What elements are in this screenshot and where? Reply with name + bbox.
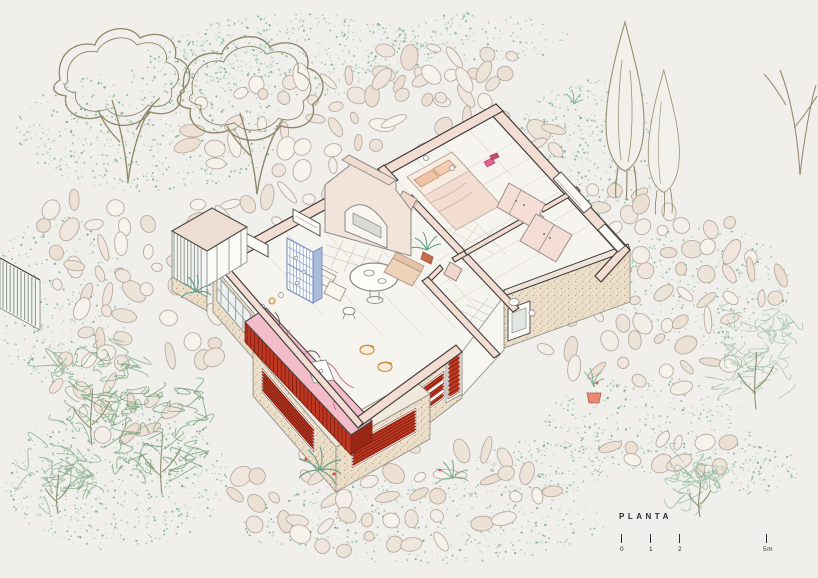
stipple-dot bbox=[401, 562, 402, 563]
stipple-dot bbox=[757, 291, 759, 293]
stipple-dot bbox=[442, 559, 444, 561]
stipple-dot bbox=[188, 91, 189, 92]
stipple-dot bbox=[224, 474, 226, 476]
stipple-dot bbox=[120, 112, 122, 114]
stipple-dot bbox=[211, 119, 213, 121]
stipple-dot bbox=[103, 155, 105, 157]
stipple-dot bbox=[692, 275, 694, 277]
stipple-dot bbox=[70, 505, 71, 506]
stipple-dot bbox=[781, 465, 783, 467]
stipple-dot bbox=[272, 115, 273, 116]
stipple-dot bbox=[341, 36, 342, 37]
stipple-dot bbox=[140, 115, 142, 117]
stipple-dot bbox=[54, 307, 56, 309]
stipple-dot bbox=[78, 118, 80, 120]
stipple-dot bbox=[163, 533, 165, 535]
stipple-dot bbox=[450, 544, 452, 546]
stipple-dot bbox=[205, 89, 207, 91]
stipple-dot bbox=[204, 50, 206, 52]
stipple-dot bbox=[70, 329, 72, 331]
stipple-dot bbox=[586, 186, 587, 187]
stipple-dot bbox=[301, 37, 303, 39]
stipple-dot bbox=[487, 43, 489, 45]
stipple-dot bbox=[135, 186, 137, 188]
stipple-dot bbox=[448, 487, 450, 489]
stipple-dot bbox=[82, 427, 83, 428]
stipple-dot bbox=[619, 430, 620, 431]
stipple-dot bbox=[122, 104, 124, 106]
stipple-dot bbox=[733, 288, 734, 289]
stipple-dot bbox=[439, 60, 440, 61]
stipple-dot bbox=[67, 299, 69, 301]
stipple-dot bbox=[92, 282, 93, 283]
stipple-dot bbox=[78, 238, 79, 239]
stipple-dot bbox=[7, 258, 8, 259]
stipple-dot bbox=[397, 41, 398, 42]
stipple-dot bbox=[567, 138, 569, 140]
stipple-dot bbox=[325, 21, 327, 23]
stipple-dot bbox=[536, 53, 538, 55]
stipple-dot bbox=[301, 13, 302, 14]
stipple-dot bbox=[146, 523, 148, 525]
stipple-dot bbox=[186, 42, 187, 43]
stipple-dot bbox=[544, 455, 545, 456]
stipple-dot bbox=[417, 35, 419, 37]
stipple-dot bbox=[549, 155, 551, 157]
stipple-dot bbox=[213, 77, 215, 79]
stipple-dot bbox=[738, 230, 740, 232]
stipple-dot bbox=[44, 298, 46, 300]
stipple-dot bbox=[597, 134, 598, 135]
stipple-dot bbox=[84, 456, 85, 457]
stipple-dot bbox=[186, 53, 188, 55]
stipple-dot bbox=[110, 270, 112, 272]
stipple-dot bbox=[33, 346, 35, 348]
stipple-dot bbox=[659, 330, 660, 331]
stipple-dot bbox=[542, 476, 544, 478]
stipple-dot bbox=[578, 172, 580, 174]
stipple-dot bbox=[689, 275, 690, 276]
stipple-dot bbox=[105, 507, 107, 509]
stipple-dot bbox=[589, 160, 590, 161]
stipple-dot bbox=[589, 118, 591, 120]
stipple-dot bbox=[355, 532, 357, 534]
stipple-dot bbox=[475, 492, 476, 493]
stipple-dot bbox=[93, 244, 95, 246]
stipple-dot bbox=[114, 482, 115, 483]
stipple-dot bbox=[221, 456, 222, 457]
stipple-dot bbox=[316, 87, 318, 89]
stipple-dot bbox=[86, 543, 88, 545]
stipple-dot bbox=[106, 182, 108, 184]
stipple-dot bbox=[174, 116, 175, 117]
stipple-dot bbox=[645, 122, 647, 124]
stipple-dot bbox=[37, 231, 38, 232]
stipple-dot bbox=[229, 175, 231, 177]
stipple-dot bbox=[667, 339, 669, 341]
stipple-dot bbox=[104, 144, 106, 146]
stipple-dot bbox=[219, 97, 221, 99]
stipple-dot bbox=[400, 35, 401, 36]
stipple-dot bbox=[531, 42, 533, 44]
stipple-dot bbox=[59, 308, 61, 310]
stipple-dot bbox=[609, 382, 611, 384]
stipple-dot bbox=[593, 95, 595, 97]
stipple-dot bbox=[235, 169, 236, 170]
stipple-dot bbox=[655, 276, 657, 278]
stipple-dot bbox=[464, 54, 466, 56]
stipple-dot bbox=[377, 526, 379, 528]
stipple-dot bbox=[549, 465, 551, 467]
stipple-dot bbox=[370, 65, 372, 67]
stipple-dot bbox=[465, 14, 466, 15]
stipple-dot bbox=[766, 444, 768, 446]
stipple-dot bbox=[596, 511, 598, 513]
stipple-dot bbox=[162, 86, 164, 88]
stipple-dot bbox=[270, 64, 272, 66]
stipple-dot bbox=[515, 446, 516, 447]
stipple-dot bbox=[564, 94, 566, 96]
stipple-dot bbox=[21, 487, 22, 488]
stipple-dot bbox=[235, 46, 237, 48]
stipple-dot bbox=[582, 519, 583, 520]
stipple-dot bbox=[615, 170, 617, 172]
stipple-dot bbox=[147, 67, 149, 69]
stipple-dot bbox=[598, 428, 599, 429]
stipple-dot bbox=[137, 494, 139, 496]
stipple-dot bbox=[613, 455, 614, 456]
stipple-dot bbox=[52, 452, 54, 454]
stipple-dot bbox=[153, 66, 155, 68]
stipple-dot bbox=[586, 448, 587, 449]
stipple-dot bbox=[640, 160, 642, 162]
stipple-dot bbox=[218, 36, 220, 38]
stipple-dot bbox=[237, 86, 239, 88]
stipple-dot bbox=[142, 418, 143, 419]
stipple-dot bbox=[525, 20, 527, 22]
stipple-dot bbox=[265, 38, 267, 40]
stipple-dot bbox=[692, 236, 693, 237]
stipple-dot bbox=[99, 82, 101, 84]
stipple-dot bbox=[182, 35, 183, 36]
stipple-dot bbox=[756, 243, 758, 245]
stipple-dot bbox=[759, 446, 761, 448]
stipple-dot bbox=[165, 42, 166, 43]
stipple-dot bbox=[662, 276, 663, 277]
stipple-dot bbox=[376, 534, 378, 536]
stipple-dot bbox=[177, 160, 178, 161]
stipple-dot bbox=[96, 284, 98, 286]
stipple-dot bbox=[35, 429, 37, 431]
stipple-dot bbox=[487, 545, 489, 547]
stipple-dot bbox=[90, 80, 92, 82]
stipple-dot bbox=[520, 488, 521, 489]
stipple-dot bbox=[424, 53, 425, 54]
stipple-dot bbox=[225, 485, 227, 487]
stipple-dot bbox=[563, 442, 565, 444]
stipple-dot bbox=[706, 416, 708, 418]
stipple-dot bbox=[154, 501, 155, 502]
stipple-dot bbox=[586, 195, 588, 197]
stipple-dot bbox=[578, 85, 580, 87]
stipple-dot bbox=[101, 503, 103, 505]
stipple-dot bbox=[471, 15, 473, 17]
stipple-dot bbox=[236, 112, 237, 113]
stipple-dot bbox=[246, 145, 248, 147]
stipple-dot bbox=[276, 63, 277, 64]
stipple-dot bbox=[198, 432, 200, 434]
stipple-dot bbox=[78, 338, 79, 339]
stipple-dot bbox=[632, 262, 634, 264]
stipple-dot bbox=[259, 103, 260, 104]
stipple-dot bbox=[201, 44, 203, 46]
stipple-dot bbox=[164, 511, 166, 513]
stipple-dot bbox=[11, 485, 12, 486]
stipple-dot bbox=[313, 503, 314, 504]
stipple-dot bbox=[617, 427, 619, 429]
stipple-dot bbox=[255, 58, 257, 60]
stipple-dot bbox=[385, 28, 386, 29]
stipple-dot bbox=[216, 58, 217, 59]
stipple-dot bbox=[314, 92, 316, 94]
stipple-dot bbox=[348, 29, 350, 31]
stipple-dot bbox=[424, 33, 425, 34]
stipple-dot bbox=[302, 25, 304, 27]
stipple-dot bbox=[76, 121, 78, 123]
stipple-dot bbox=[678, 281, 679, 282]
stipple-dot bbox=[96, 299, 97, 300]
stipple-dot bbox=[635, 312, 636, 313]
stipple-dot bbox=[80, 108, 82, 110]
stipple-dot bbox=[139, 463, 141, 465]
stipple-dot bbox=[176, 533, 178, 535]
stipple-dot bbox=[318, 53, 320, 55]
stipple-dot bbox=[752, 306, 753, 307]
stipple-dot bbox=[587, 82, 588, 83]
stipple-dot bbox=[206, 65, 208, 67]
stipple-dot bbox=[23, 231, 24, 232]
stipple-dot bbox=[395, 560, 397, 562]
stipple-dot bbox=[77, 379, 79, 381]
stipple-dot bbox=[437, 526, 439, 528]
stipple-dot bbox=[445, 513, 447, 515]
stipple-dot bbox=[170, 80, 172, 82]
stipple-dot bbox=[201, 167, 203, 169]
stipple-dot bbox=[12, 482, 14, 484]
stipple-dot bbox=[701, 345, 703, 347]
stipple-dot bbox=[555, 99, 556, 100]
stipple-dot bbox=[449, 496, 451, 498]
stipple-dot bbox=[150, 511, 151, 512]
stipple-dot bbox=[123, 327, 125, 329]
stipple-dot bbox=[246, 39, 247, 40]
stipple-dot bbox=[214, 37, 215, 38]
stipple-dot bbox=[209, 515, 211, 517]
stipple-dot bbox=[106, 103, 108, 105]
stipple-dot bbox=[182, 431, 184, 433]
stipple-dot bbox=[675, 239, 676, 240]
stipple-dot bbox=[175, 112, 177, 114]
stipple-dot bbox=[147, 459, 148, 460]
stipple-dot bbox=[290, 48, 291, 49]
stipple-dot bbox=[114, 489, 116, 491]
stipple-dot bbox=[391, 63, 392, 64]
stipple-dot bbox=[187, 57, 188, 58]
stipple-dot bbox=[284, 54, 286, 56]
stipple-dot bbox=[48, 370, 49, 371]
stipple-dot bbox=[236, 82, 237, 83]
stipple-dot bbox=[552, 41, 554, 43]
stipple-dot bbox=[562, 86, 563, 87]
stipple-dot bbox=[549, 529, 550, 530]
stipple-dot bbox=[718, 312, 720, 314]
stipple-dot bbox=[91, 453, 93, 455]
stipple-dot bbox=[216, 479, 218, 481]
stipple-dot bbox=[47, 531, 49, 533]
stipple-dot bbox=[543, 445, 545, 447]
stipple-dot bbox=[164, 519, 166, 521]
stipple-dot bbox=[660, 390, 662, 392]
stipple-dot bbox=[8, 251, 9, 252]
stipple-dot bbox=[542, 523, 543, 524]
stipple-dot bbox=[397, 531, 399, 533]
stipple-dot bbox=[62, 439, 64, 441]
stipple-dot bbox=[604, 145, 606, 147]
stipple-dot bbox=[572, 532, 574, 534]
stipple-dot bbox=[557, 443, 559, 445]
stipple-dot bbox=[343, 35, 345, 37]
stipple-dot bbox=[734, 461, 736, 463]
stipple-dot bbox=[490, 471, 491, 472]
stipple-dot bbox=[53, 454, 55, 456]
stipple-dot bbox=[256, 98, 257, 99]
stipple-dot bbox=[674, 331, 676, 333]
stipple-dot bbox=[91, 233, 92, 234]
stipple-dot bbox=[347, 537, 348, 538]
stipple-dot bbox=[146, 526, 148, 528]
stipple-dot bbox=[521, 532, 523, 534]
stipple-dot bbox=[172, 131, 173, 132]
stipple-dot bbox=[556, 451, 557, 452]
stipple-dot bbox=[520, 507, 522, 509]
stipple-dot bbox=[138, 516, 140, 518]
stipple-dot bbox=[202, 50, 204, 52]
stipple-dot bbox=[514, 552, 516, 554]
stipple-dot bbox=[470, 520, 471, 521]
stipple-dot bbox=[527, 132, 528, 133]
stipple-dot bbox=[719, 328, 720, 329]
stipple-dot bbox=[205, 33, 207, 35]
stipple-dot bbox=[73, 155, 75, 157]
stipple-dot bbox=[319, 518, 320, 519]
stipple-dot bbox=[573, 529, 574, 530]
stipple-dot bbox=[45, 368, 46, 369]
stipple-dot bbox=[107, 131, 109, 133]
stipple-dot bbox=[85, 266, 86, 267]
stipple-dot bbox=[113, 186, 115, 188]
stipple-dot bbox=[427, 561, 429, 563]
stipple-dot bbox=[700, 454, 701, 455]
stipple-dot bbox=[375, 552, 376, 553]
stipple-dot bbox=[105, 504, 107, 506]
stipple-dot bbox=[542, 541, 543, 542]
stipple-dot bbox=[761, 242, 762, 243]
stipple-dot bbox=[118, 479, 119, 480]
stipple-dot bbox=[266, 106, 268, 108]
stipple-dot bbox=[55, 224, 57, 226]
stipple-dot bbox=[545, 421, 547, 423]
stipple-dot bbox=[744, 308, 746, 310]
stipple-dot bbox=[653, 428, 655, 430]
stipple-dot bbox=[98, 548, 99, 549]
stipple-dot bbox=[230, 40, 231, 41]
stipple-dot bbox=[257, 27, 259, 29]
stipple-dot bbox=[463, 15, 465, 17]
stipple-dot bbox=[403, 41, 405, 43]
stipple-dot bbox=[248, 165, 250, 167]
stipple-dot bbox=[88, 454, 90, 456]
stipple-dot bbox=[524, 54, 526, 56]
stipple-dot bbox=[718, 233, 720, 235]
stipple-dot bbox=[192, 54, 194, 56]
stipple-dot bbox=[208, 101, 210, 103]
stipple-dot bbox=[654, 432, 656, 434]
stipple-dot bbox=[250, 105, 251, 106]
stipple-dot bbox=[740, 405, 741, 406]
stipple-dot bbox=[566, 34, 567, 35]
stipple-dot bbox=[709, 456, 711, 458]
stipple-dot bbox=[212, 180, 214, 182]
stipple-dot bbox=[529, 494, 530, 495]
stipple-dot bbox=[682, 304, 684, 306]
stipple-dot bbox=[570, 484, 572, 486]
stipple-dot bbox=[224, 68, 226, 70]
stipple-dot bbox=[736, 477, 738, 479]
stipple-dot bbox=[396, 45, 397, 46]
stipple-dot bbox=[563, 108, 564, 109]
stipple-dot bbox=[389, 64, 390, 65]
stipple-dot bbox=[522, 462, 524, 464]
stipple-dot bbox=[217, 72, 219, 74]
stipple-dot bbox=[162, 163, 164, 165]
stipple-dot bbox=[251, 53, 252, 54]
stipple-dot bbox=[55, 295, 56, 296]
stipple-dot bbox=[54, 219, 56, 221]
stipple-dot bbox=[269, 28, 270, 29]
stipple-dot bbox=[228, 82, 230, 84]
stipple-dot bbox=[56, 303, 58, 305]
stipple-dot bbox=[228, 151, 229, 152]
stipple-dot bbox=[146, 84, 148, 86]
stipple-dot bbox=[747, 493, 749, 495]
stipple-dot bbox=[706, 457, 708, 459]
stipple-dot bbox=[57, 536, 58, 537]
stipple-dot bbox=[382, 489, 384, 491]
stipple-dot bbox=[455, 32, 457, 34]
stipple-dot bbox=[695, 435, 697, 437]
stipple-dot bbox=[377, 507, 379, 509]
stipple-dot bbox=[664, 449, 665, 450]
stipple-dot bbox=[733, 310, 735, 312]
stipple-dot bbox=[429, 501, 430, 502]
stipple-dot bbox=[707, 463, 708, 464]
stipple-dot bbox=[781, 256, 782, 257]
stipple-dot bbox=[378, 513, 380, 515]
stipple-dot bbox=[181, 522, 183, 524]
stipple-dot bbox=[137, 184, 139, 186]
stipple-dot bbox=[714, 337, 716, 339]
stipple-dot bbox=[194, 473, 196, 475]
